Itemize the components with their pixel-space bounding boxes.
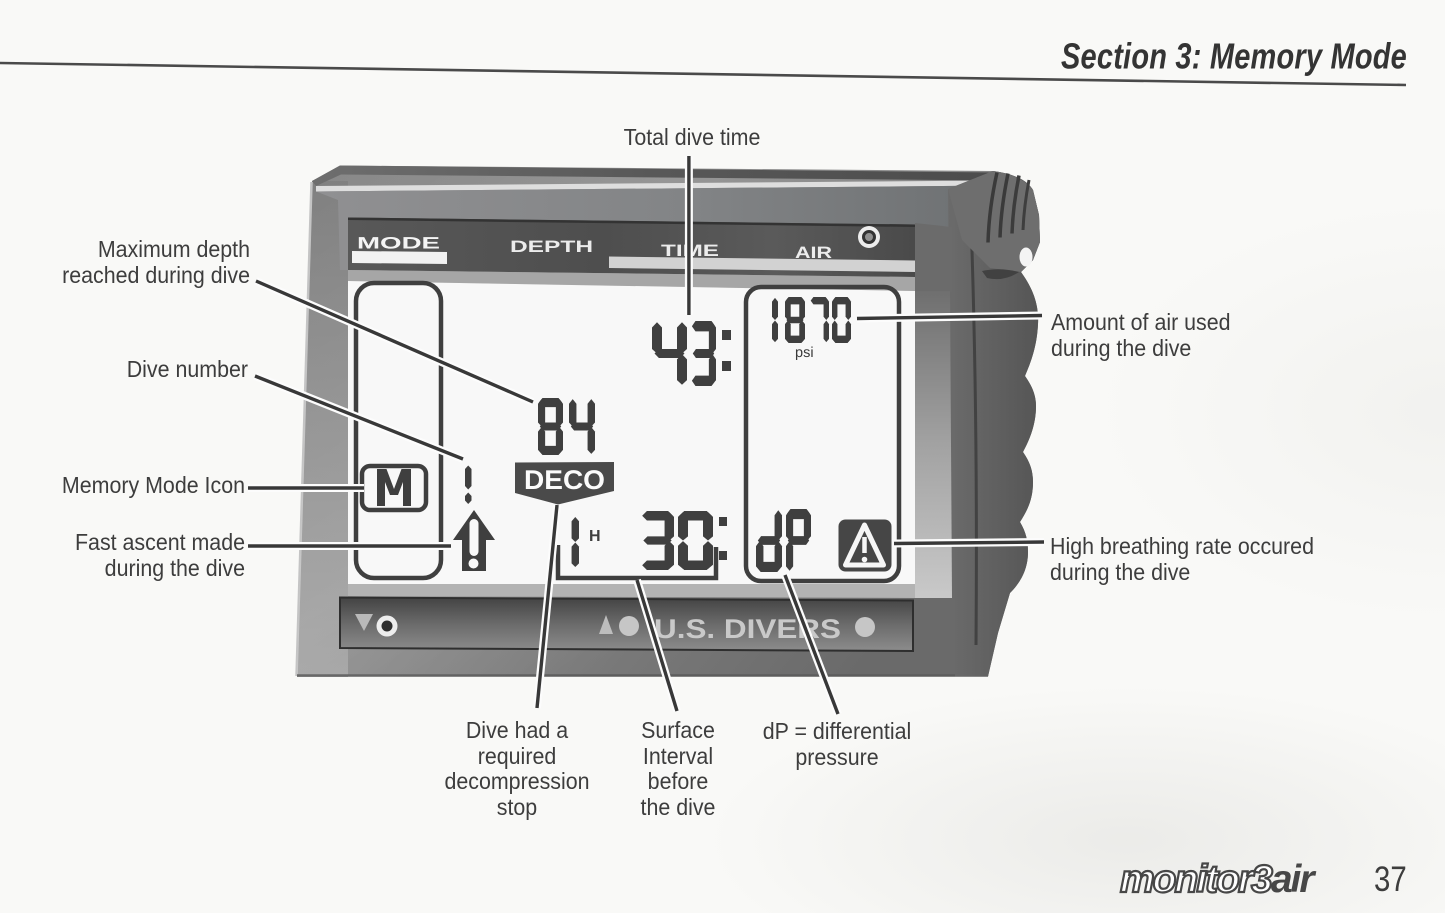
svg-text:psi: psi [795, 345, 814, 361]
svg-text:H: H [589, 528, 601, 545]
svg-text:MODE: MODE [357, 235, 440, 253]
svg-text:AIR: AIR [795, 244, 832, 262]
svg-text:DEPTH: DEPTH [510, 238, 593, 256]
svg-text:DECO: DECO [524, 465, 605, 495]
